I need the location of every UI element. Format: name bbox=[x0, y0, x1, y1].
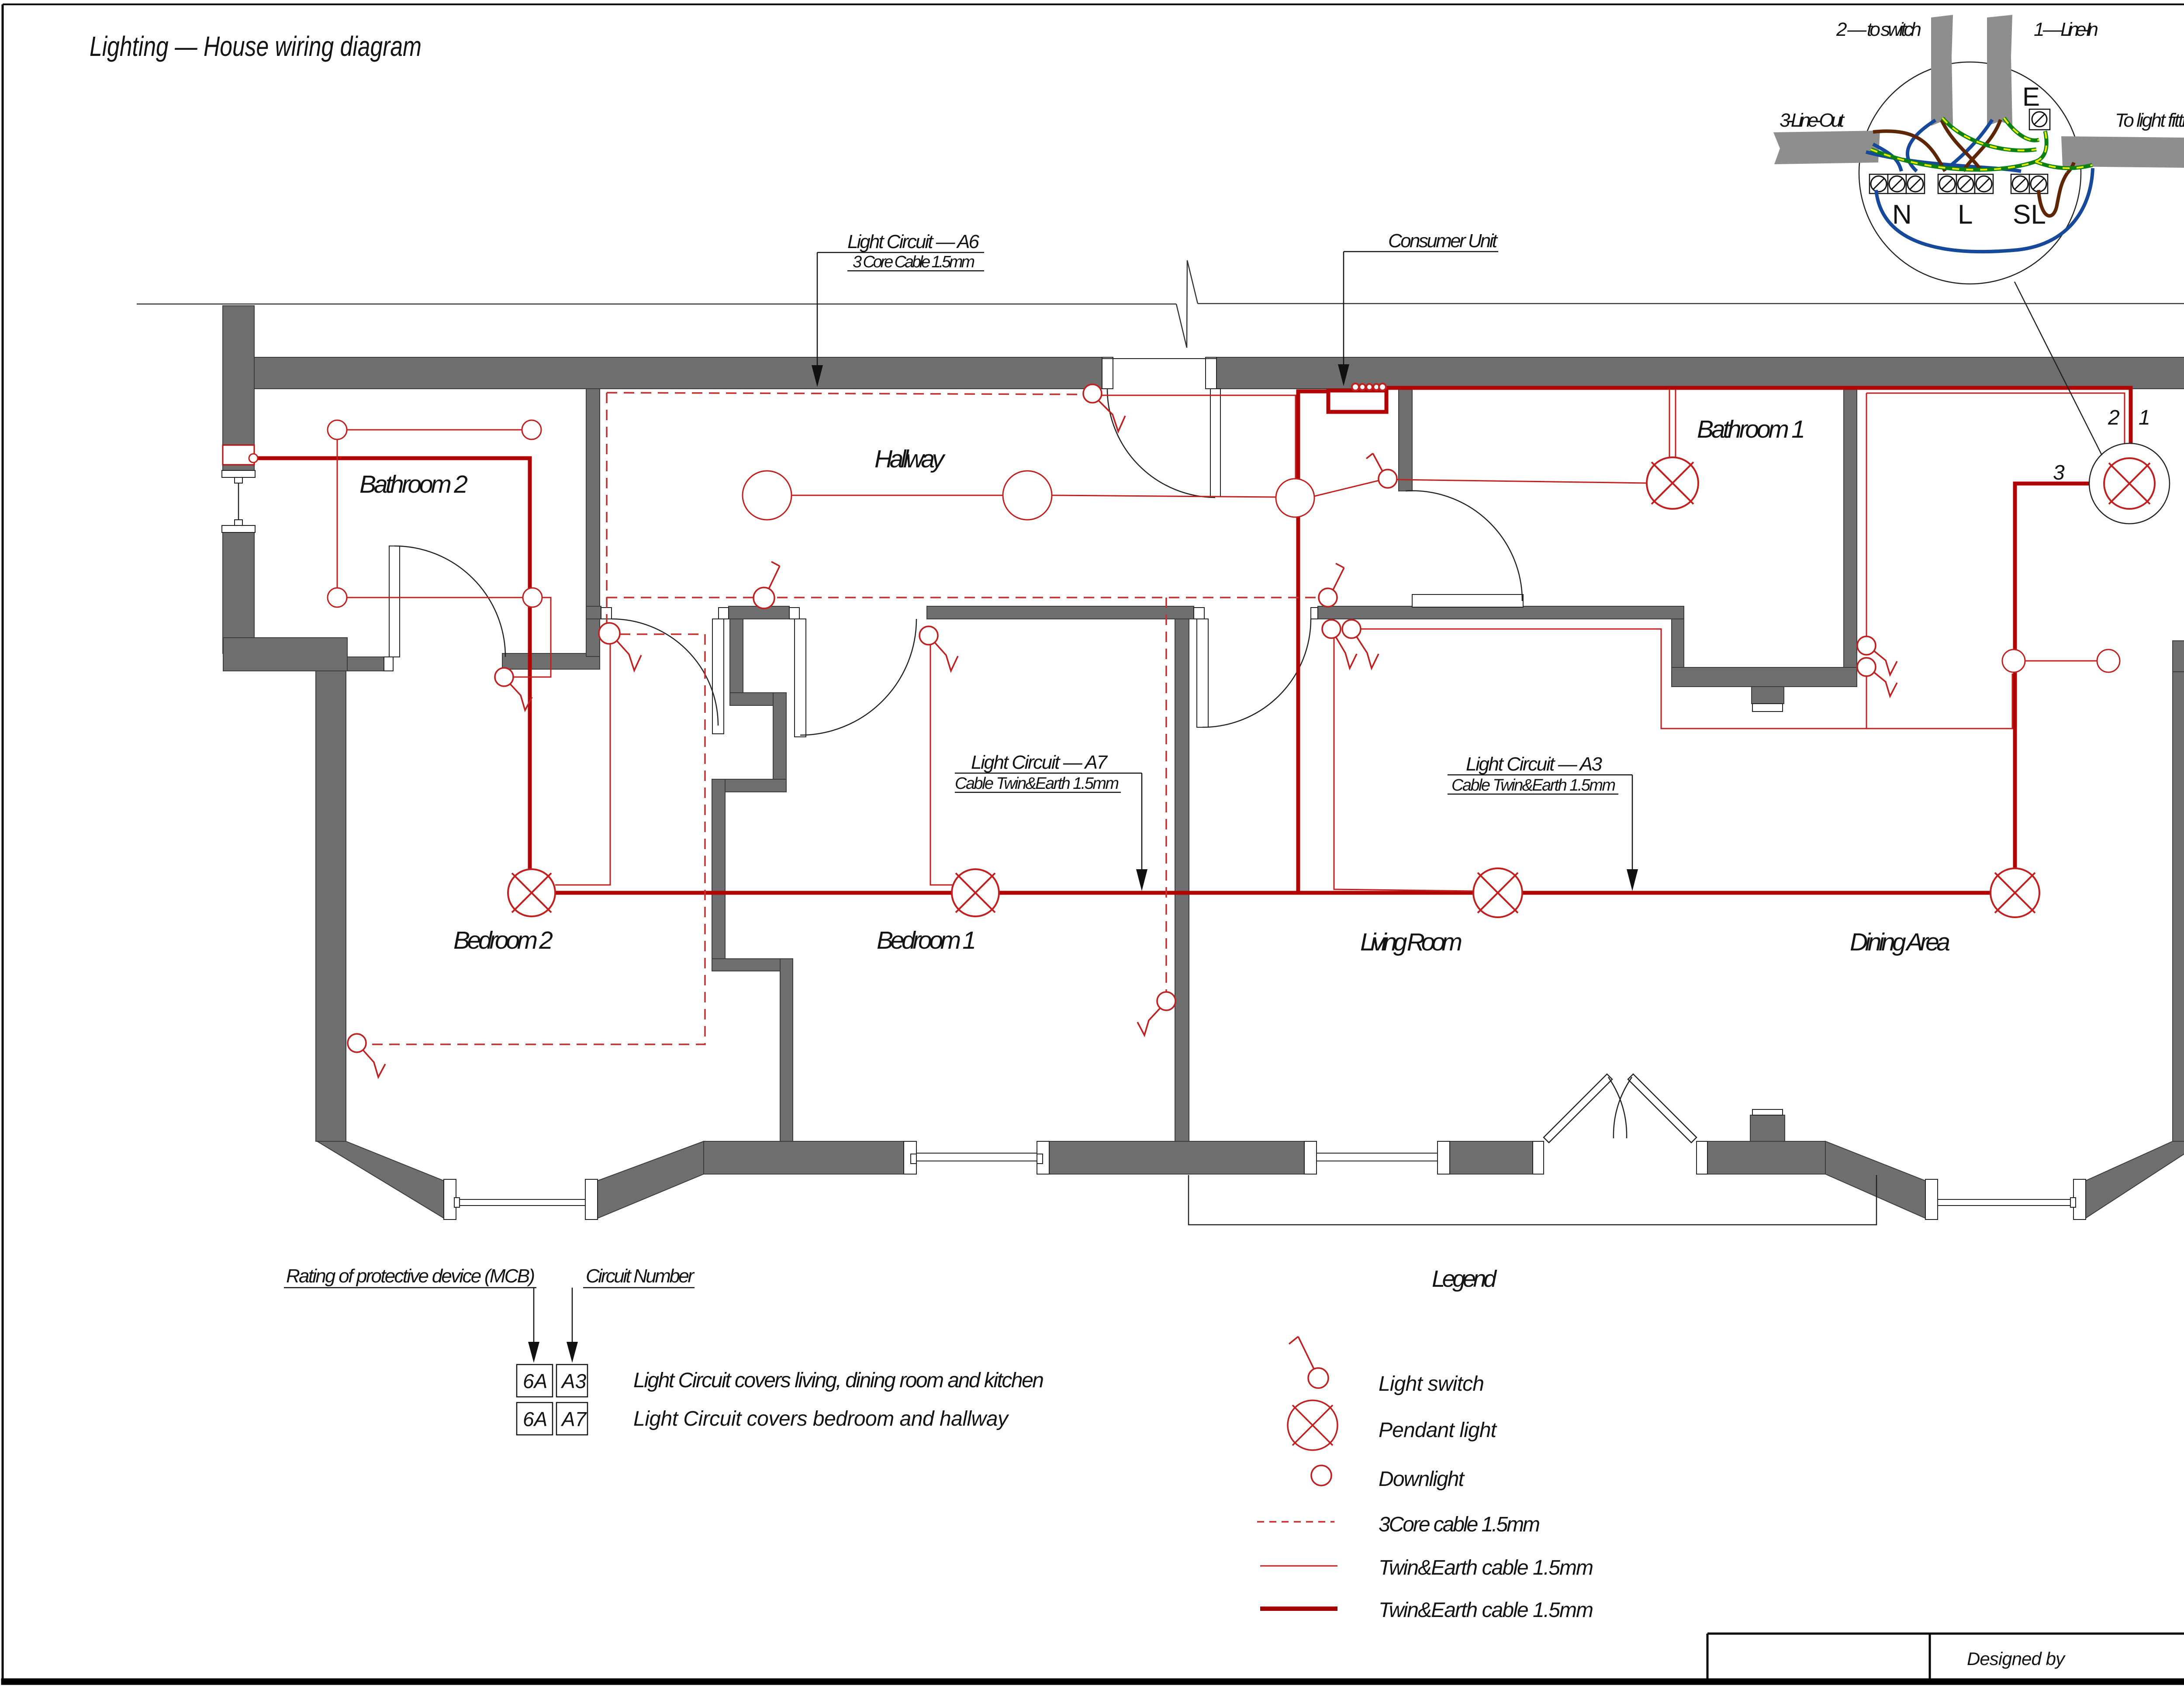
svg-text:Light Circuit — A3: Light Circuit — A3 bbox=[1466, 753, 1603, 775]
svg-text:Light switch: Light switch bbox=[1379, 1372, 1484, 1396]
svg-text:Dining Area: Dining Area bbox=[1850, 928, 1950, 956]
svg-text:Twin&Earth cable 1.5mm: Twin&Earth cable 1.5mm bbox=[1379, 1599, 1593, 1622]
svg-text:Light Circuit covers bedroom a: Light Circuit covers bedroom and hallway bbox=[633, 1407, 1009, 1430]
svg-text:3Core cable 1.5mm: 3Core cable 1.5mm bbox=[1379, 1513, 1540, 1536]
svg-text:Light Circuit — A7: Light Circuit — A7 bbox=[971, 752, 1108, 773]
svg-text:Legend: Legend bbox=[1432, 1266, 1497, 1292]
svg-text:3: 3 bbox=[2053, 461, 2065, 484]
svg-text:Downlight: Downlight bbox=[1379, 1468, 1465, 1491]
svg-text:Light Circuit — A6: Light Circuit — A6 bbox=[847, 231, 980, 252]
svg-text:Cable Twin&Earth 1.5mm: Cable Twin&Earth 1.5mm bbox=[955, 774, 1119, 793]
svg-text:Bedroom 2: Bedroom 2 bbox=[453, 926, 553, 954]
svg-text:3-Line-Out: 3-Line-Out bbox=[1780, 110, 1845, 131]
svg-text:2 — to switch: 2 — to switch bbox=[1836, 19, 1921, 40]
svg-text:Hallway: Hallway bbox=[874, 445, 946, 473]
svg-text:Bedroom 1: Bedroom 1 bbox=[877, 926, 976, 954]
svg-text:6A: 6A bbox=[523, 1370, 547, 1392]
svg-text:A3: A3 bbox=[560, 1370, 587, 1392]
svg-text:2: 2 bbox=[2108, 406, 2120, 429]
svg-text:1 — Line-In: 1 — Line-In bbox=[2034, 19, 2098, 40]
svg-text:Light Circuit covers living, d: Light Circuit covers living, dining room… bbox=[633, 1369, 1044, 1392]
svg-text:E: E bbox=[2022, 82, 2040, 111]
svg-text:6A: 6A bbox=[523, 1408, 547, 1430]
svg-text:Pendant light: Pendant light bbox=[1379, 1419, 1497, 1442]
svg-text:Consumer Unit: Consumer Unit bbox=[1388, 230, 1498, 252]
svg-text:Bathroom 1: Bathroom 1 bbox=[1697, 415, 1805, 443]
svg-text:Cable Twin&Earth 1.5mm: Cable Twin&Earth 1.5mm bbox=[1451, 776, 1616, 795]
svg-text:A7: A7 bbox=[560, 1408, 587, 1430]
svg-text:Twin&Earth cable 1.5mm: Twin&Earth cable 1.5mm bbox=[1379, 1556, 1593, 1579]
svg-text:Bathroom 2: Bathroom 2 bbox=[359, 470, 468, 498]
svg-text:Designed by: Designed by bbox=[1967, 1648, 2066, 1669]
svg-text:1: 1 bbox=[2139, 406, 2150, 429]
svg-text:L: L bbox=[1958, 200, 1973, 230]
svg-text:Circuit Number: Circuit Number bbox=[586, 1265, 695, 1287]
svg-text:To light fitting: To light fitting bbox=[2115, 110, 2184, 131]
svg-text:N: N bbox=[1892, 200, 1912, 230]
svg-text:Living Room: Living Room bbox=[1360, 928, 1462, 956]
svg-text:Lighting — House wiring diagra: Lighting — House wiring diagram bbox=[90, 31, 422, 62]
svg-text:Rating of protective device (M: Rating of protective device (MCB) bbox=[286, 1265, 535, 1287]
svg-text:3 Core Cable 1.5mm: 3 Core Cable 1.5mm bbox=[853, 253, 975, 271]
